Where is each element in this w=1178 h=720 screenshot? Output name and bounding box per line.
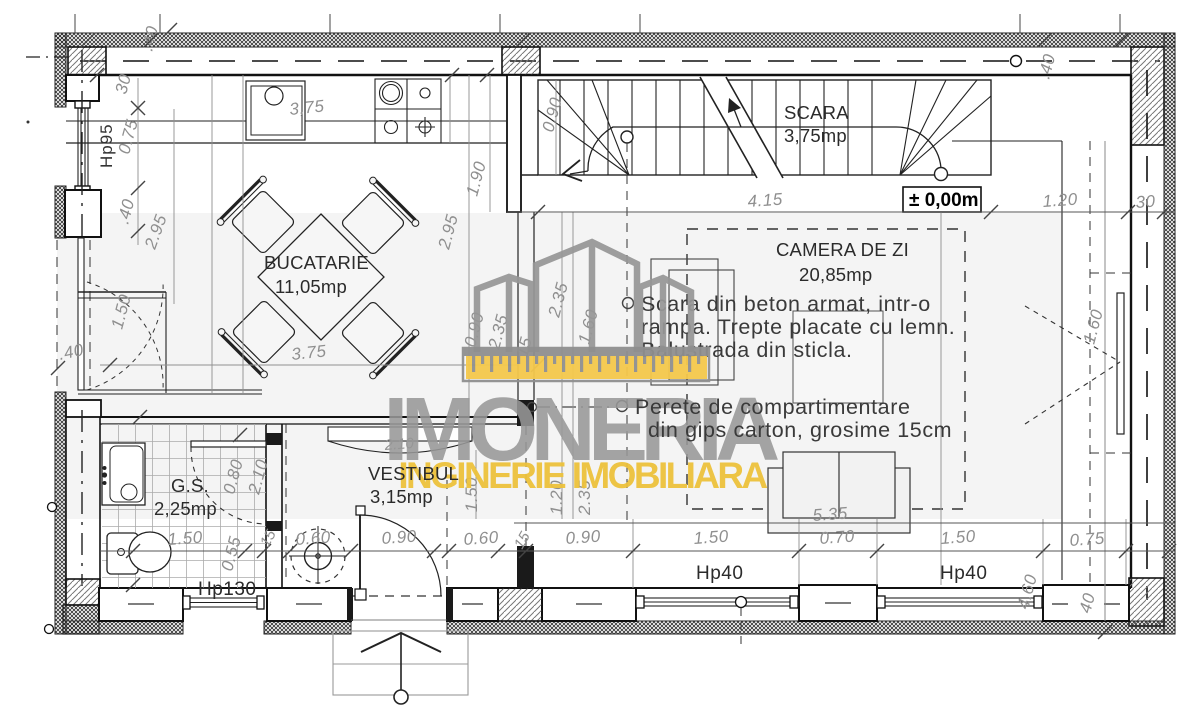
svg-text:3,75: 3,75 <box>288 96 325 119</box>
svg-text:0.75: 0.75 <box>1069 529 1105 550</box>
svg-text:2,25mp: 2,25mp <box>154 498 217 519</box>
svg-text:0.90: 0.90 <box>565 527 601 548</box>
svg-text:20,85mp: 20,85mp <box>799 264 872 285</box>
svg-text:1.20: 1.20 <box>1042 190 1078 211</box>
svg-text:3,75mp: 3,75mp <box>784 125 847 146</box>
svg-text:G.S.: G.S. <box>171 475 209 496</box>
svg-text:5.35: 5.35 <box>812 504 848 525</box>
svg-text:CAMERA DE ZI: CAMERA DE ZI <box>776 239 909 260</box>
svg-text:Hp130: Hp130 <box>198 579 257 600</box>
svg-text:VESTIBUL: VESTIBUL <box>368 463 459 484</box>
svg-text:1.50: 1.50 <box>940 527 976 548</box>
svg-text:± 0,00m: ± 0,00m <box>909 190 979 211</box>
svg-text:Perete de compartimentare: Perete de compartimentare <box>635 395 911 419</box>
svg-text:4.15: 4.15 <box>747 190 783 211</box>
svg-text:0.60: 0.60 <box>463 528 499 549</box>
svg-text:0.70: 0.70 <box>819 527 855 548</box>
svg-text:30: 30 <box>1135 192 1156 212</box>
svg-text:0.60: 0.60 <box>295 528 331 549</box>
svg-text:Hp40: Hp40 <box>940 563 987 584</box>
svg-text:Hp95: Hp95 <box>97 123 116 168</box>
svg-text:1.50: 1.50 <box>693 527 729 548</box>
svg-text:0.90: 0.90 <box>381 527 417 548</box>
svg-text:Scara din beton armat, intr-o: Scara din beton armat, intr-o <box>641 292 931 316</box>
svg-text:3.75: 3.75 <box>290 341 327 364</box>
svg-text:1.50: 1.50 <box>167 528 203 549</box>
svg-text:3,15mp: 3,15mp <box>370 486 433 507</box>
svg-text:Hp40: Hp40 <box>696 563 743 584</box>
svg-text:BUCATARIE: BUCATARIE <box>264 252 369 273</box>
svg-text:din gips carton, grosime 15cm: din gips carton, grosime 15cm <box>648 418 952 442</box>
svg-text:SCARA: SCARA <box>784 102 849 123</box>
svg-text:11,05mp: 11,05mp <box>275 276 347 297</box>
